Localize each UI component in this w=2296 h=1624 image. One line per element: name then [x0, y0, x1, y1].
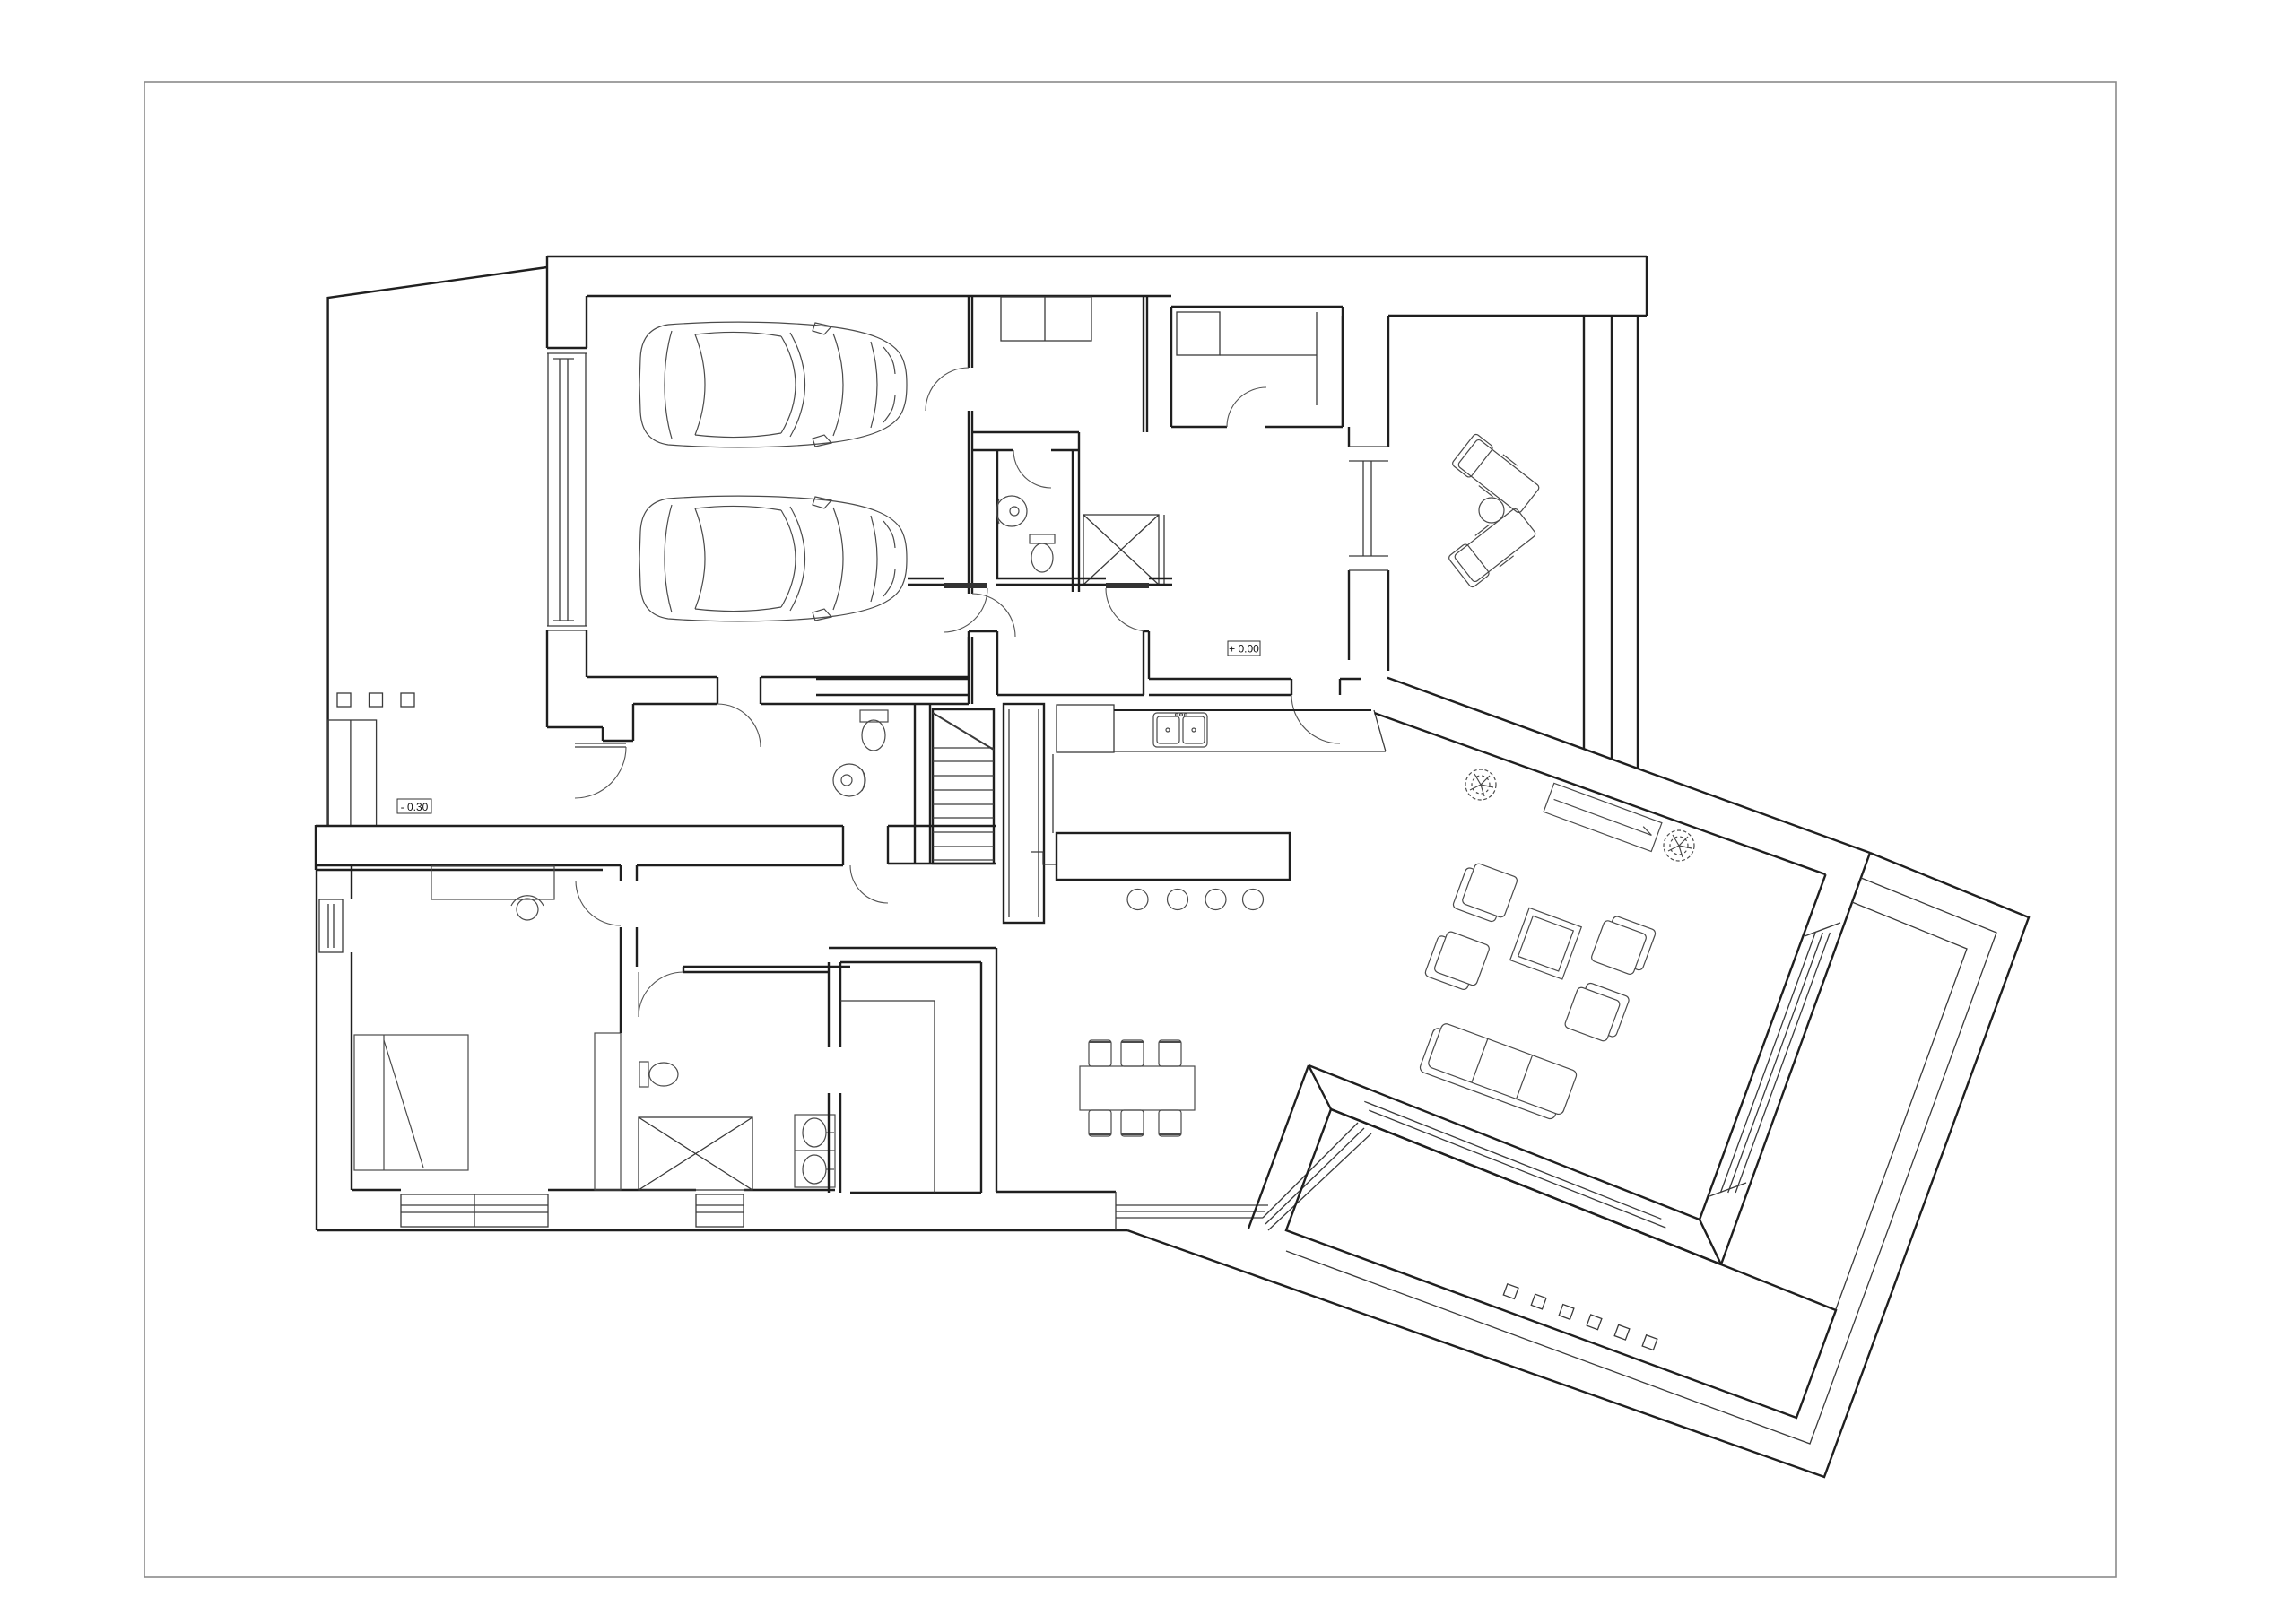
svg-text:+ 0.00: + 0.00 — [1229, 643, 1259, 656]
svg-text:- 0.30: - 0.30 — [401, 801, 429, 813]
